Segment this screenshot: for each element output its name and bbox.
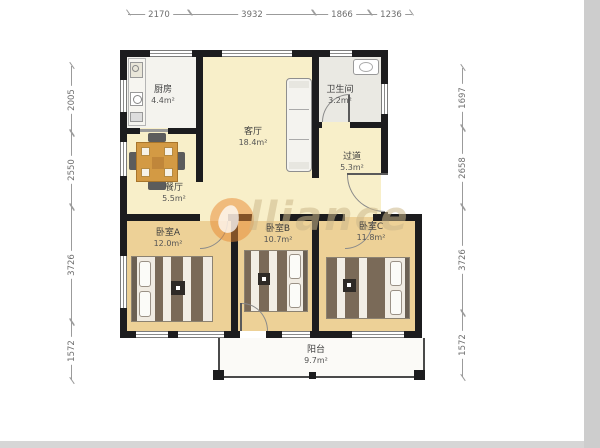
- bedroomA-area: 12.0m²: [130, 239, 206, 249]
- wall-bottom: [120, 331, 136, 338]
- bed-b: [244, 250, 308, 312]
- sofa-armrest: [289, 162, 309, 169]
- bed-headboard: [132, 257, 137, 321]
- bed-blanket: [245, 251, 287, 311]
- dim-label: 3726: [458, 246, 468, 274]
- wall-bottom: [168, 331, 178, 338]
- pillow-icon: [289, 283, 301, 308]
- bedroomB-label: 卧室B 10.7m²: [240, 224, 316, 244]
- window: [381, 84, 388, 114]
- hall-label: 过道 5.3m²: [314, 152, 390, 172]
- dim-right-1572: 1572: [462, 313, 463, 377]
- balcony-rail-bottom: [218, 376, 425, 378]
- dim-label: 1572: [67, 337, 77, 365]
- bedroomA-label: 卧室A 12.0m²: [130, 228, 206, 248]
- viewer-edge-bottom: [0, 441, 584, 448]
- sofa-cushion-divider: [289, 109, 309, 110]
- plate-icon: [141, 147, 150, 156]
- dim-label: 1697: [458, 84, 468, 112]
- dim-label: 2005: [67, 86, 77, 114]
- bed-headboard: [405, 258, 409, 318]
- living-area: 18.4m²: [215, 138, 291, 148]
- dim-top-3932: 3932: [190, 14, 314, 15]
- bed-a: [131, 256, 213, 322]
- bedroomB-name: 卧室B: [240, 224, 316, 235]
- bed-accent: [343, 279, 356, 292]
- wall-bottom: [224, 331, 240, 338]
- window: [330, 50, 352, 57]
- bath-area: 3.2m²: [302, 96, 378, 106]
- balcony-post: [309, 372, 316, 379]
- dim-top-1866: 1866: [314, 14, 370, 15]
- kitchen-sliding-door: [140, 129, 168, 132]
- window: [352, 331, 404, 338]
- bed-headboard: [303, 251, 307, 311]
- bed-accent: [258, 273, 270, 285]
- dim-label: 2170: [145, 10, 173, 20]
- bed-blanket: [327, 258, 385, 318]
- dining-chair: [148, 133, 166, 142]
- pillow-icon: [139, 291, 151, 317]
- plate-icon: [141, 168, 150, 177]
- dim-label: 1866: [328, 10, 356, 20]
- kitchen-cabinet: [130, 112, 143, 122]
- window: [136, 331, 168, 338]
- dim-top-1236: 1236: [370, 14, 412, 15]
- blanket-stripe: [359, 258, 367, 318]
- balcony-post: [414, 370, 425, 380]
- blanket-stripe: [269, 251, 277, 311]
- bath-name: 卫生间: [302, 85, 378, 96]
- living-label: 客厅 18.4m²: [215, 127, 291, 147]
- wall-bath-bottom: [312, 122, 322, 128]
- dim-left-3726: 3726: [71, 207, 72, 322]
- wall-bedroomC-right: [415, 214, 422, 338]
- window: [282, 331, 310, 338]
- dim-top-2170: 2170: [128, 14, 190, 15]
- dining-name: 餐厅: [136, 183, 212, 194]
- wall-bath-bottom: [350, 122, 381, 128]
- kitchen-label: 厨房 4.4m²: [125, 85, 201, 105]
- dim-label: 1572: [458, 331, 468, 359]
- dim-left-1572: 1572: [71, 322, 72, 380]
- dim-label: 2550: [67, 156, 77, 184]
- bedroomB-area: 10.7m²: [240, 235, 316, 245]
- dim-label: 3726: [67, 251, 77, 279]
- stove-burner-icon: [132, 65, 139, 72]
- wall-middle: [120, 214, 200, 221]
- kitchen-area: 4.4m²: [125, 96, 201, 106]
- dim-left-2550: 2550: [71, 133, 72, 207]
- bed-c: [326, 257, 410, 319]
- dim-label: 2658: [458, 154, 468, 182]
- table-center: [152, 157, 164, 169]
- bedroomA-name: 卧室A: [130, 228, 206, 239]
- dim-right-1697: 1697: [462, 68, 463, 128]
- wall-bottom: [310, 331, 352, 338]
- hall-area: 5.3m²: [314, 163, 390, 173]
- bedroomC-name: 卧室C: [333, 222, 409, 233]
- dining-label: 餐厅 5.5m²: [136, 183, 212, 203]
- pillow-icon: [289, 254, 301, 279]
- balcony-post: [213, 370, 224, 380]
- wall-bottom: [266, 331, 282, 338]
- plate-icon: [164, 168, 173, 177]
- dining-table: [136, 142, 178, 182]
- floorplan-canvas: 2170 3932 1866 1236 2005 2550 3726 1572 …: [0, 0, 600, 448]
- wall-bottom: [404, 331, 422, 338]
- bed-blanket: [155, 257, 203, 321]
- window: [120, 142, 127, 176]
- hall-name: 过道: [314, 152, 390, 163]
- balcony-name: 阳台: [278, 345, 354, 356]
- dining-area: 5.5m²: [136, 194, 212, 204]
- watermark-flame-icon: [216, 203, 242, 235]
- window: [222, 50, 292, 57]
- balcony-area: 9.7m²: [278, 356, 354, 366]
- pillow-icon: [139, 261, 151, 287]
- pillow-icon: [390, 290, 402, 315]
- living-name: 客厅: [215, 127, 291, 138]
- dim-label: 1236: [377, 10, 405, 20]
- sofa-cushion-divider: [289, 139, 309, 140]
- wall-kitchen-bottom: [120, 128, 140, 134]
- plate-icon: [164, 147, 173, 156]
- balcony-label: 阳台 9.7m²: [278, 345, 354, 365]
- dim-left-2005: 2005: [71, 66, 72, 133]
- window: [178, 331, 224, 338]
- pillow-icon: [390, 261, 402, 286]
- bathroom-sink-basin: [359, 62, 373, 72]
- dim-right-2658: 2658: [462, 128, 463, 207]
- dim-label: 3932: [238, 10, 266, 20]
- dim-right-3726: 3726: [462, 207, 463, 313]
- wall-dining-living: [196, 134, 203, 182]
- window: [150, 50, 192, 57]
- kitchen-name: 厨房: [125, 85, 201, 96]
- viewer-edge-right: [584, 0, 600, 448]
- bedroomC-area: 11.8m²: [333, 233, 409, 243]
- bed-accent: [171, 281, 185, 295]
- blanket-stripe: [163, 257, 171, 321]
- bedroomC-label: 卧室C 11.8m²: [333, 222, 409, 242]
- window: [120, 256, 127, 308]
- bath-label: 卫生间 3.2m²: [302, 85, 378, 105]
